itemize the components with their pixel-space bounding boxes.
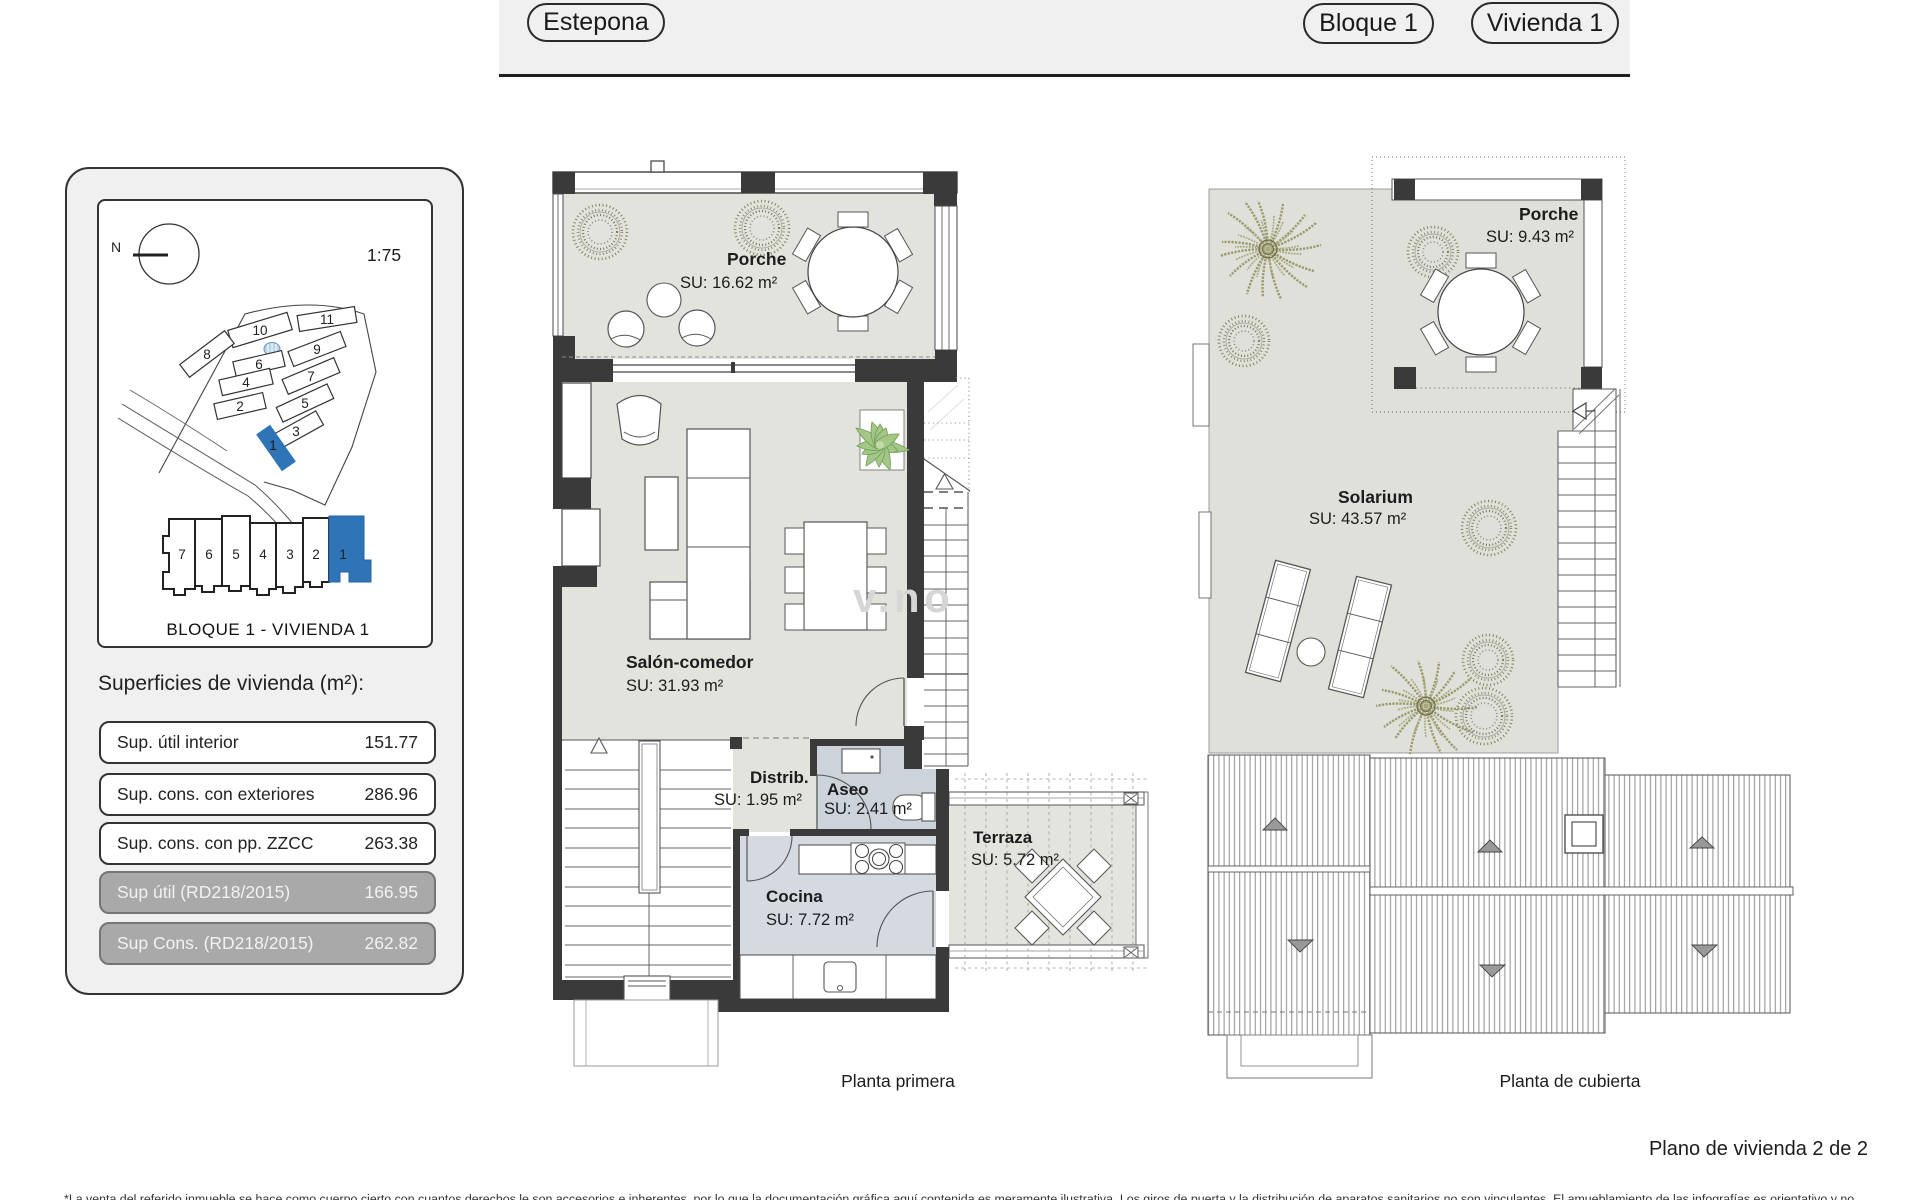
svg-text:SU: 16.62 m²: SU: 16.62 m²	[680, 274, 778, 292]
svg-text:2: 2	[312, 547, 320, 562]
svg-text:5: 5	[301, 396, 309, 411]
svg-text:SU: 43.57 m²: SU: 43.57 m²	[1309, 510, 1407, 528]
svg-text:7: 7	[178, 547, 186, 562]
svg-text:*La venta del referido inmuebl: *La venta del referido inmueble se hace …	[64, 1192, 1854, 1200]
svg-text:Plano de vivienda 2 de 2: Plano de vivienda 2 de 2	[1649, 1138, 1868, 1160]
svg-text:4: 4	[259, 547, 267, 562]
svg-text:11: 11	[320, 312, 334, 327]
svg-text:SU: 31.93 m²: SU: 31.93 m²	[626, 677, 724, 695]
svg-text:1:75: 1:75	[367, 245, 401, 265]
svg-text:1: 1	[339, 547, 347, 562]
svg-text:Cocina: Cocina	[766, 887, 823, 906]
svg-text:8: 8	[203, 347, 211, 362]
svg-text:BLOQUE 1 - VIVIENDA 1: BLOQUE 1 - VIVIENDA 1	[166, 620, 369, 639]
svg-text:N: N	[111, 239, 121, 255]
svg-text:6: 6	[205, 547, 213, 562]
svg-text:Planta de cubierta: Planta de cubierta	[1499, 1071, 1640, 1091]
svg-text:3: 3	[286, 547, 294, 562]
svg-text:Porche: Porche	[1519, 204, 1579, 224]
svg-text:SU: 5.72 m²: SU: 5.72 m²	[971, 851, 1060, 869]
svg-text:5: 5	[232, 547, 240, 562]
svg-text:Terraza: Terraza	[973, 828, 1033, 847]
svg-text:2: 2	[236, 399, 244, 414]
svg-text:v.no: v.no	[853, 574, 954, 621]
svg-text:Distrib.: Distrib.	[750, 768, 809, 787]
svg-text:SU: 9.43 m²: SU: 9.43 m²	[1486, 228, 1575, 246]
svg-text:9: 9	[313, 342, 321, 357]
svg-text:Solarium: Solarium	[1338, 487, 1413, 507]
svg-text:10: 10	[252, 323, 267, 338]
svg-text:7: 7	[307, 369, 315, 384]
svg-text:3: 3	[292, 424, 300, 439]
svg-text:1: 1	[269, 438, 277, 453]
svg-text:SU: 1.95 m²: SU: 1.95 m²	[714, 791, 803, 809]
svg-text:Aseo: Aseo	[827, 780, 869, 799]
svg-text:4: 4	[242, 375, 250, 390]
svg-text:Planta primera: Planta primera	[841, 1071, 955, 1091]
svg-text:SU: 2.41 m²: SU: 2.41 m²	[824, 800, 913, 818]
svg-text:Porche: Porche	[727, 249, 787, 269]
svg-text:SU: 7.72 m²: SU: 7.72 m²	[766, 911, 855, 929]
svg-text:Salón-comedor: Salón-comedor	[626, 652, 754, 672]
